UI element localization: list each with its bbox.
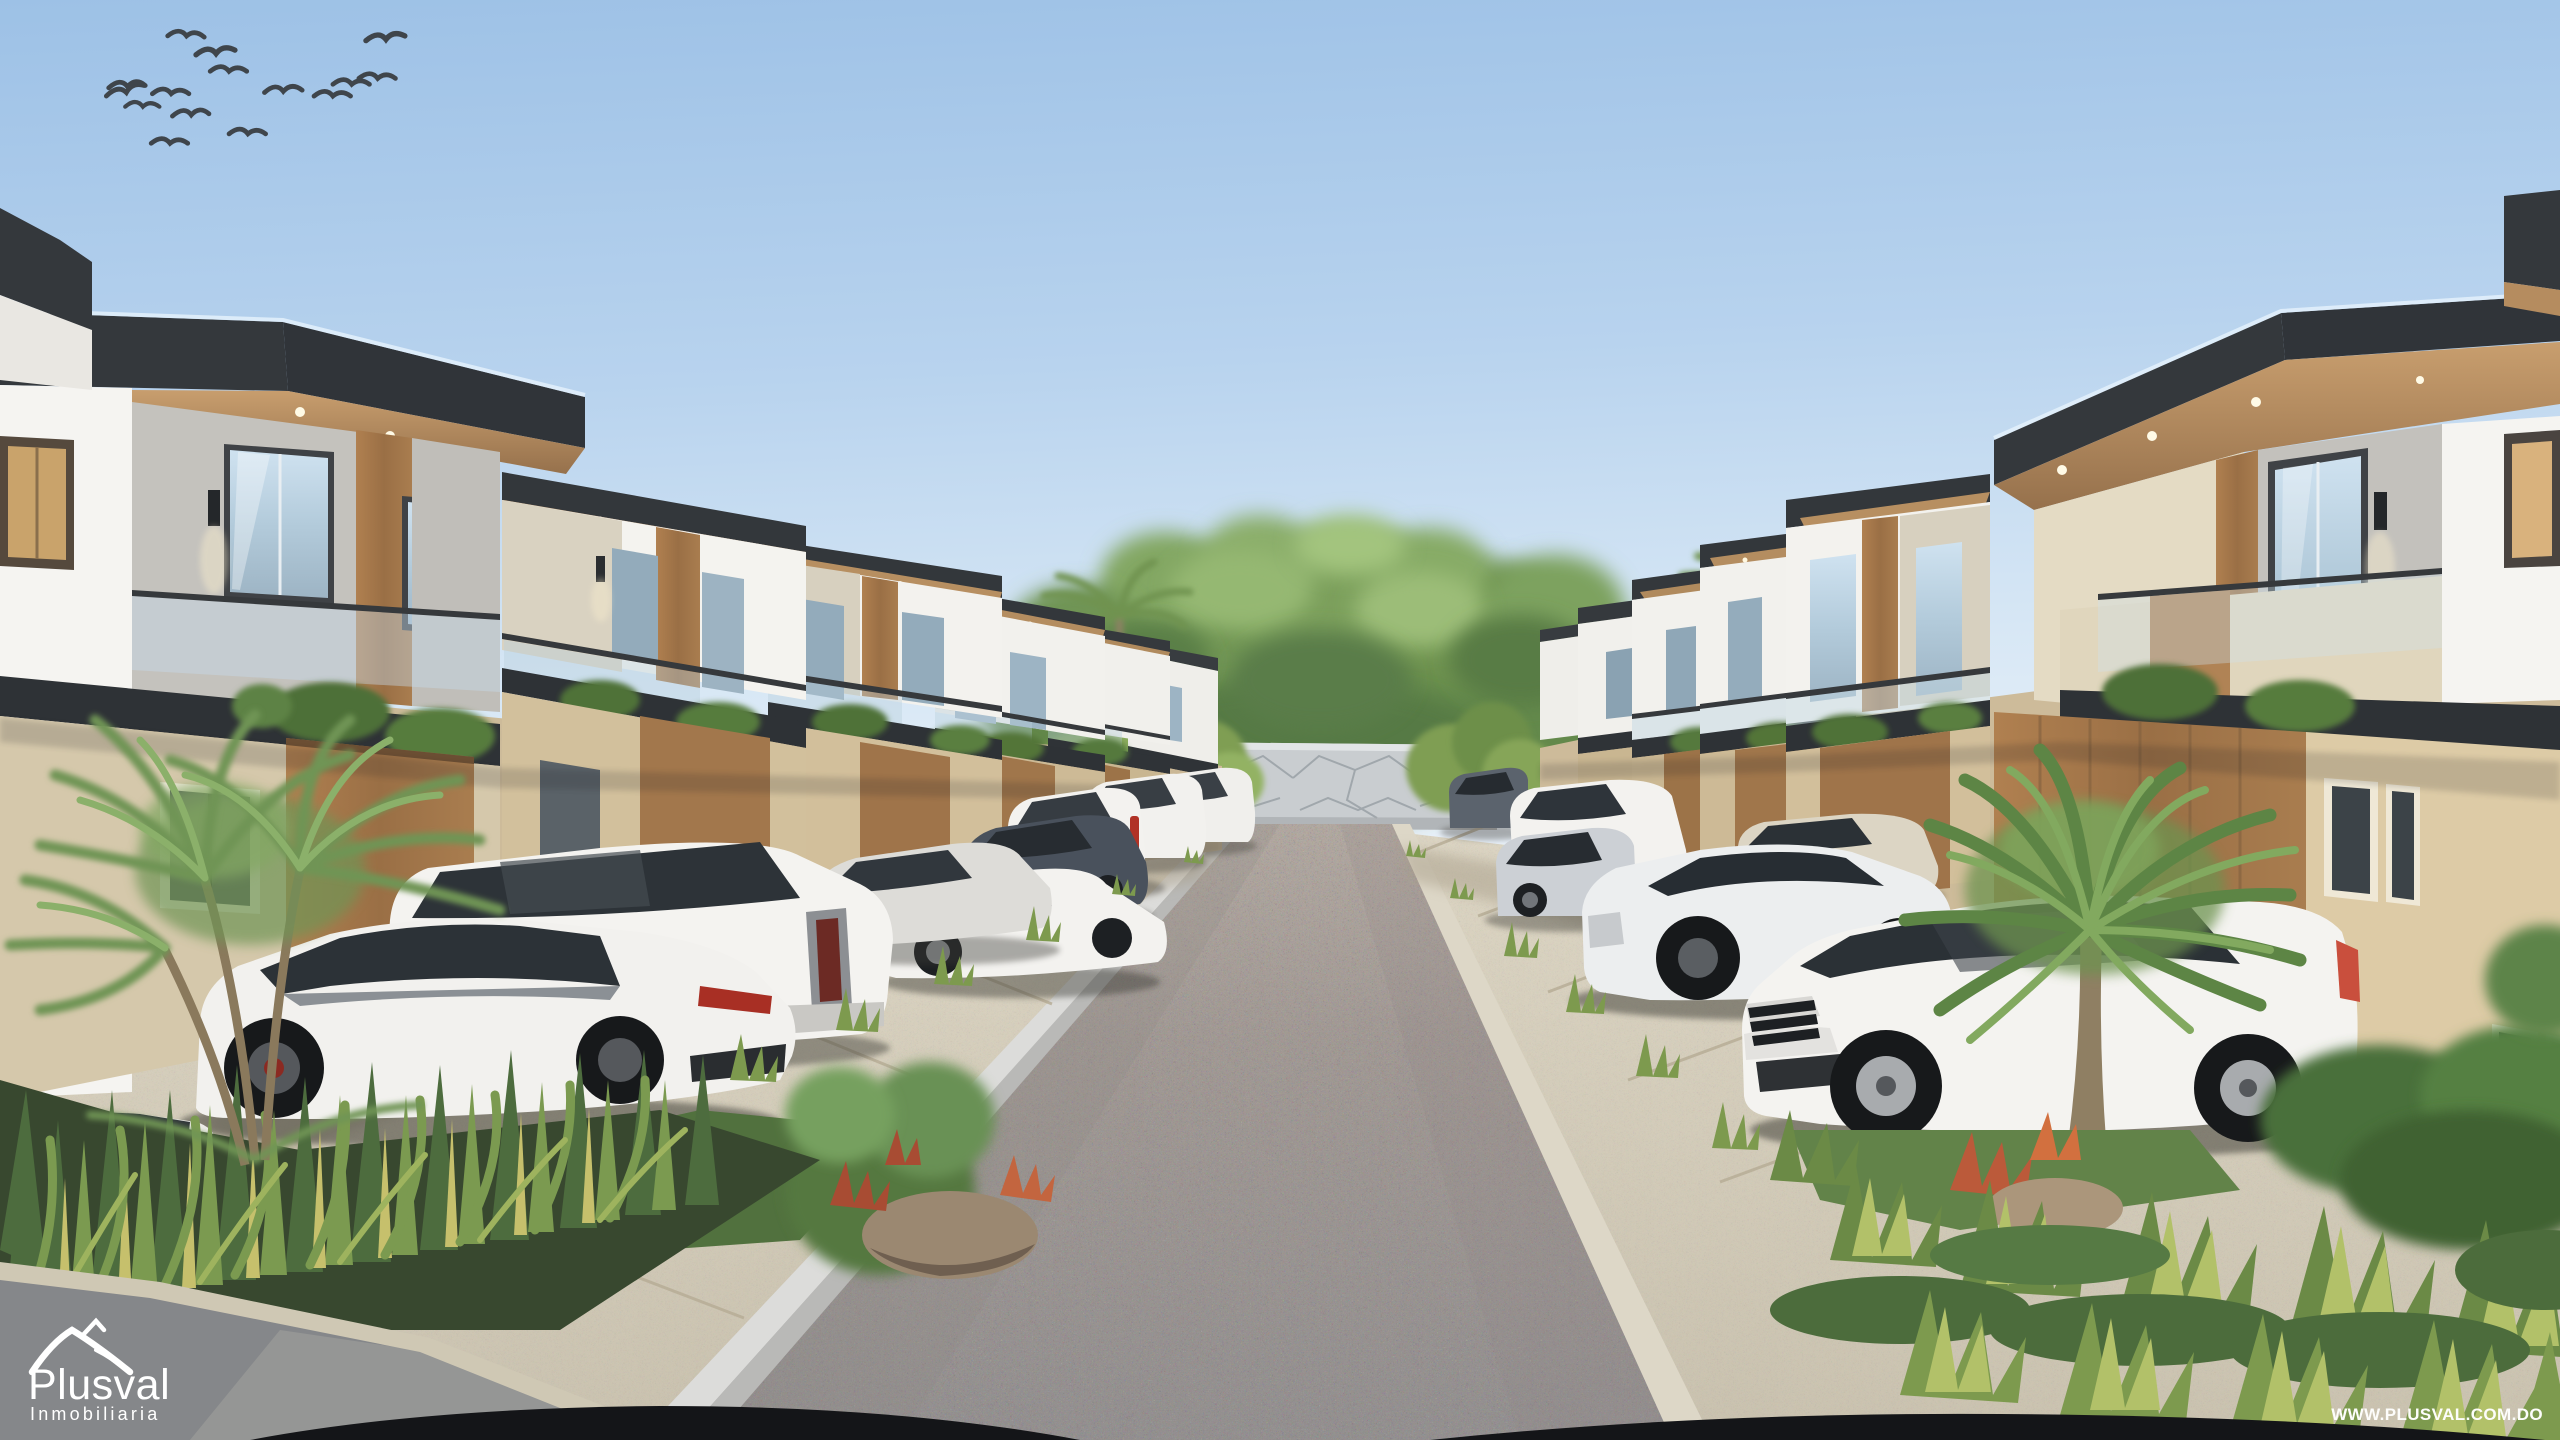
svg-text:Plusval: Plusval bbox=[28, 1361, 170, 1409]
svg-text:WWW.PLUSVAL.COM.DO: WWW.PLUSVAL.COM.DO bbox=[2331, 1405, 2543, 1424]
svg-text:Inmobiliaria: Inmobiliaria bbox=[30, 1404, 160, 1424]
